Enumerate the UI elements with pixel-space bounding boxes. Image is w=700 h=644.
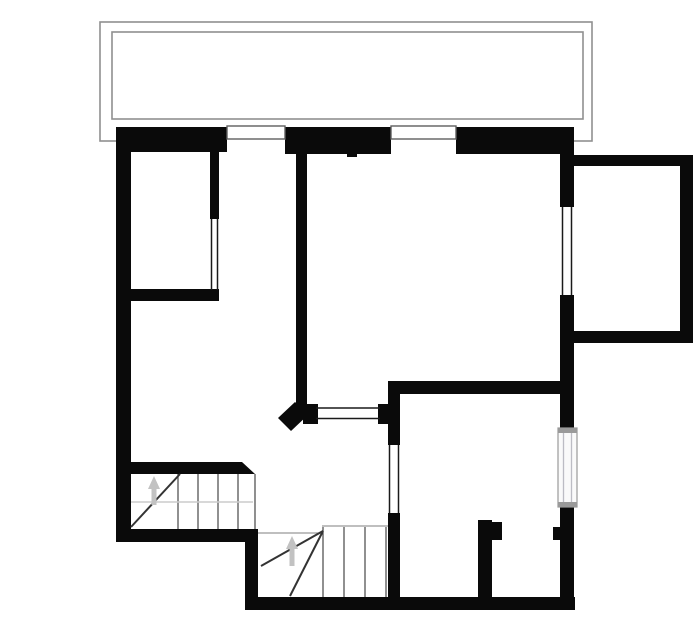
floor-plan-canvas [0,0,700,644]
right-wall-upper-wall [560,127,574,207]
top-wall-right-wall [456,127,574,154]
balcony-outline-inner [112,32,583,119]
stair-top-wall-wall [131,462,242,474]
annex-south-wall-wall [574,331,693,343]
divider-wall-upper-wall [388,381,400,445]
lower-right-window-cap [558,428,577,433]
bedroom-south-wall-wall [116,289,219,301]
hall-partition-wall-wall [296,140,307,412]
right-wall-lower-wall [560,506,574,610]
bedroom-east-wall-wall [210,140,219,219]
stair-wall-chamfer [242,462,255,474]
bottom-wall-west-wall [116,529,258,542]
annex-north-wall-wall [560,155,692,166]
room-south-wall-wall [388,381,562,394]
floor-plan-drawing [0,0,700,644]
balcony-outline-outer [100,22,592,141]
closet-wall-wall [478,520,492,598]
stair-flight-lower-direction-arrow-icon [286,536,298,549]
left-exterior-wall-wall [116,127,131,542]
closet-door-jamb-wall [492,522,502,540]
right-wall-middle-wall [560,295,574,428]
wall-nub-wall [347,153,357,157]
annex-east-wall-wall [680,155,693,343]
window-opening-right [559,207,575,295]
stair-flight-upper-direction-arrow-icon [148,476,160,489]
bottom-wall-south-wall [245,597,575,610]
right-door-jamb-wall [553,527,562,540]
lower-right-window-cap [558,502,577,507]
balcony-door-left [227,126,285,139]
lower-right-window [558,428,577,507]
balcony-door-right [391,126,456,139]
divider-wall-lower-wall [388,513,400,605]
